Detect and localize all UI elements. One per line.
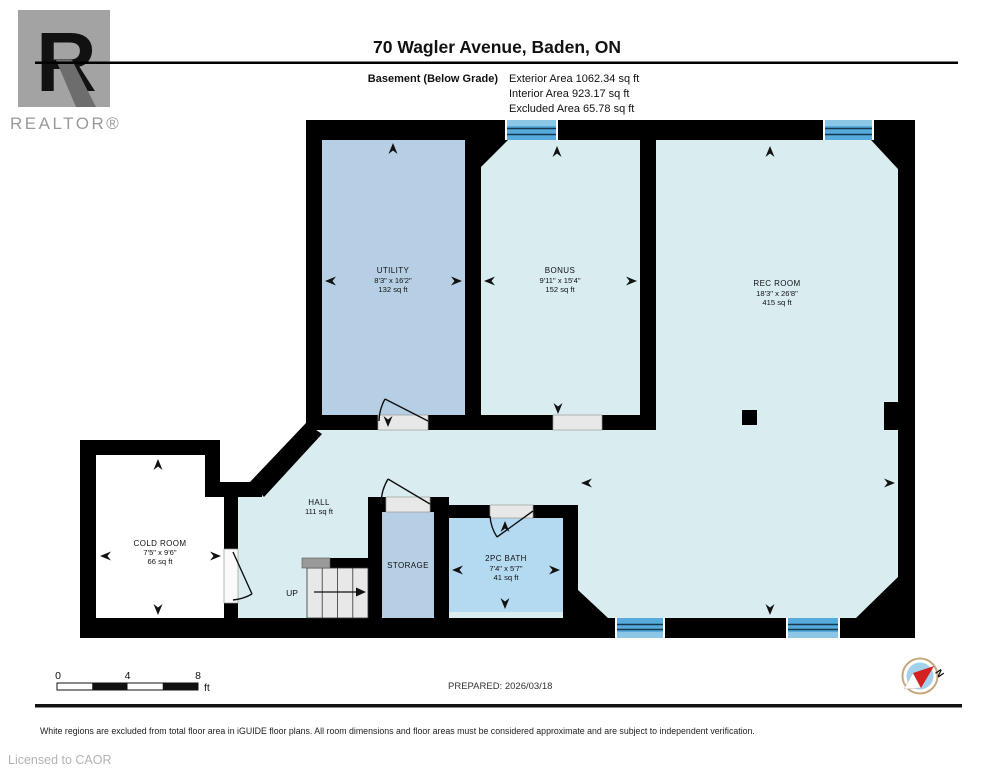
- storage-name: STORAGE: [387, 561, 429, 570]
- utility-name: UTILITY: [377, 266, 410, 275]
- footer-divider: [35, 704, 962, 708]
- compass: N: [903, 659, 946, 694]
- bath-area: 41 sq ft: [494, 573, 520, 582]
- scale-tick-8: 8: [195, 670, 201, 682]
- realtor-logo: R: [18, 10, 110, 109]
- cold-room-area: 66 sq ft: [148, 557, 174, 566]
- rec-room-name: REC ROOM: [753, 279, 800, 288]
- exterior-area: Exterior Area 1062.34 sq ft: [509, 73, 639, 85]
- floor-label: Basement (Below Grade): [368, 73, 499, 85]
- room-cold-floor: [96, 455, 224, 618]
- page-title: 70 Wagler Avenue, Baden, ON: [373, 37, 621, 57]
- window-top-rec: [823, 120, 874, 140]
- hall-name: HALL: [308, 498, 330, 507]
- scale-tick-0: 0: [55, 670, 61, 682]
- scale-unit: ft: [204, 682, 210, 694]
- scale-tick-4: 4: [125, 670, 131, 682]
- interior-area: Interior Area 923.17 sq ft: [509, 88, 629, 100]
- utility-area: 132 sq ft: [378, 285, 408, 294]
- storage-door-sill: [386, 497, 430, 512]
- bath-dims: 7'4" x 5'7": [489, 564, 523, 573]
- cold-room-dims: 7'5" x 9'6": [143, 548, 177, 557]
- bonus-name: BONUS: [545, 266, 575, 275]
- bonus-area: 152 sq ft: [545, 285, 575, 294]
- floor-plan-canvas: R REALTOR® 70 Wagler Avenue, Baden, ON B…: [0, 0, 995, 768]
- window-bottom-right: [786, 618, 840, 638]
- floor-plan: UP UTILITY 8'3": [80, 120, 915, 638]
- window-bottom-left: [615, 618, 665, 638]
- realtor-wordmark: REALTOR®: [10, 114, 121, 133]
- licensed-text: Licensed to CAOR: [8, 753, 112, 767]
- cold-room-name: COLD ROOM: [134, 539, 187, 548]
- utility-dims: 8'3" x 16'2": [374, 276, 412, 285]
- bath-name: 2PC BATH: [485, 554, 527, 563]
- scale-bar: 0 4 8 ft: [55, 670, 210, 694]
- stairs-up-label: UP: [286, 588, 298, 598]
- bonus-dims: 9'11" x 15'4": [539, 276, 580, 285]
- rec-room-dims: 18'3" x 26'8": [756, 289, 798, 298]
- window-top-bonus: [505, 120, 558, 140]
- prepared-date: PREPARED: 2026/03/18: [448, 681, 552, 692]
- hall-area: 111 sq ft: [305, 507, 334, 516]
- excluded-area: Excluded Area 65.78 sq ft: [509, 103, 634, 115]
- rec-room-area: 415 sq ft: [762, 298, 792, 307]
- floor-plan-page: R REALTOR® 70 Wagler Avenue, Baden, ON B…: [0, 0, 995, 768]
- bonus-opening-sill: [553, 415, 602, 430]
- header-divider: [35, 62, 958, 65]
- stair-handrail: [302, 558, 330, 568]
- disclaimer-text: White regions are excluded from total fl…: [40, 726, 755, 736]
